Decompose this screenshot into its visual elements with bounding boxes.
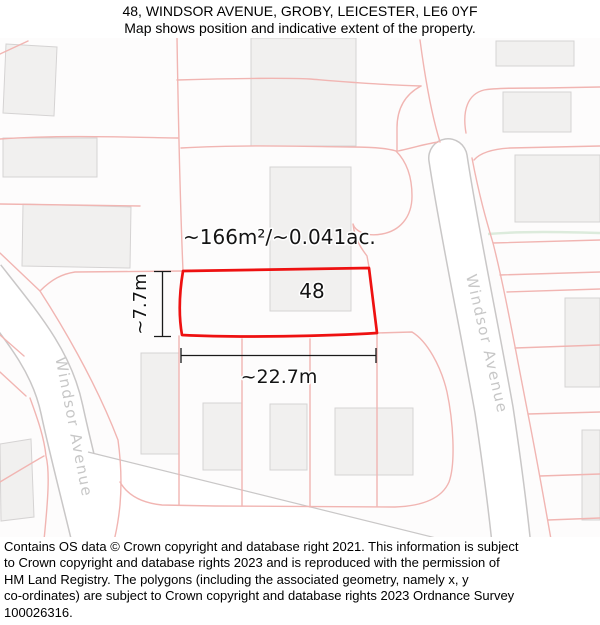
area-label: ~166m²/~0.041ac. — [183, 225, 376, 249]
footer-line: to Crown copyright and database rights 2… — [4, 555, 596, 571]
building — [203, 403, 242, 470]
page-title: 48, WINDSOR AVENUE, GROBY, LEICESTER, LE… — [0, 3, 600, 20]
width-dimension-label: ~22.7m — [241, 366, 318, 388]
footer-line: 100026316. — [4, 605, 596, 621]
header: 48, WINDSOR AVENUE, GROBY, LEICESTER, LE… — [0, 3, 600, 37]
depth-dimension-label: ~7.7m — [130, 273, 151, 334]
map-canvas: Windsor Avenue Windsor Avenue ~22.7m ~7.… — [0, 38, 600, 537]
footer-line: HM Land Registry. The polygons (includin… — [4, 572, 596, 588]
building — [515, 155, 600, 222]
plot-number-label: 48 — [299, 279, 324, 303]
footer-line: co-ordinates) are subject to Crown copyr… — [4, 588, 596, 604]
building — [3, 44, 57, 116]
building — [565, 298, 600, 387]
building — [141, 353, 179, 454]
building — [22, 204, 131, 268]
footer-line: Contains OS data © Crown copyright and d… — [4, 539, 596, 555]
building — [0, 439, 34, 521]
building — [3, 138, 97, 177]
building — [251, 38, 356, 146]
property-map-page: 48, WINDSOR AVENUE, GROBY, LEICESTER, LE… — [0, 0, 600, 625]
building — [270, 404, 307, 470]
building — [503, 92, 571, 132]
building — [335, 408, 413, 475]
page-subtitle: Map shows position and indicative extent… — [0, 20, 600, 37]
building — [496, 41, 574, 66]
map-svg: Windsor Avenue Windsor Avenue ~22.7m ~7.… — [0, 38, 600, 537]
copyright-footer: Contains OS data © Crown copyright and d… — [4, 539, 596, 621]
